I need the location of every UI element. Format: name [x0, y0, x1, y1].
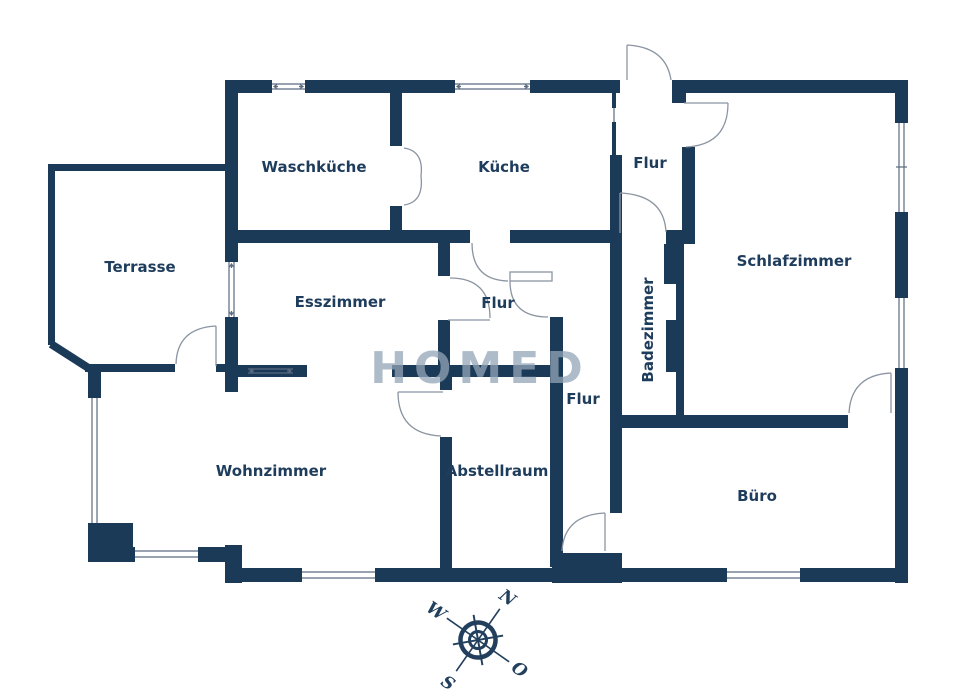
room-label-waschkueche: Waschküche [261, 158, 366, 176]
room-label-flur-mitte: Flur [481, 294, 515, 312]
door-buero-schlafzimmer [849, 373, 891, 413]
room-label-abstellraum: Abstellraum [446, 462, 549, 480]
window [272, 84, 305, 89]
door-waschkueche-kueche [404, 148, 421, 205]
floor-plan: HOMED Waschküche Küche Flur Schlafzimmer… [0, 0, 960, 696]
room-label-badezimmer: Badezimmer [639, 277, 657, 383]
window [727, 572, 800, 578]
window [899, 298, 904, 368]
compass-north-label: N [494, 585, 520, 612]
walls [48, 80, 908, 583]
compass-east-label: O [507, 658, 531, 683]
terrace-chamfer [51, 344, 90, 369]
floor-plan-canvas: HOMED Waschküche Küche Flur Schlafzimmer… [0, 0, 960, 696]
door-entrance [627, 45, 671, 80]
window [896, 123, 907, 212]
room-label-schlafzimmer: Schlafzimmer [737, 252, 852, 270]
window [302, 572, 375, 578]
watermark: HOMED [370, 343, 590, 394]
room-label-wohnzimmer: Wohnzimmer [216, 462, 327, 480]
window [92, 398, 97, 523]
room-label-kueche: Küche [478, 158, 530, 176]
room-label-flur-unten: Flur [566, 390, 600, 408]
door-flur-buero [562, 513, 605, 551]
room-label-esszimmer: Esszimmer [295, 293, 386, 311]
compass-west-label: W [422, 598, 451, 626]
door-terrasse [176, 326, 216, 366]
window [229, 262, 234, 317]
room-label-terrasse: Terrasse [104, 258, 175, 276]
window [135, 551, 198, 557]
compass-south-label: S [437, 672, 459, 695]
door-flur-schlafzimmer [684, 103, 728, 147]
room-label-buero: Büro [737, 487, 777, 505]
room-label-flur-oben: Flur [633, 154, 667, 172]
door-kueche-flur [472, 243, 508, 281]
window [455, 84, 530, 89]
door-flur-badezimmer [620, 193, 666, 233]
door-flur-flur [510, 272, 552, 317]
door-abstellraum [398, 392, 443, 436]
